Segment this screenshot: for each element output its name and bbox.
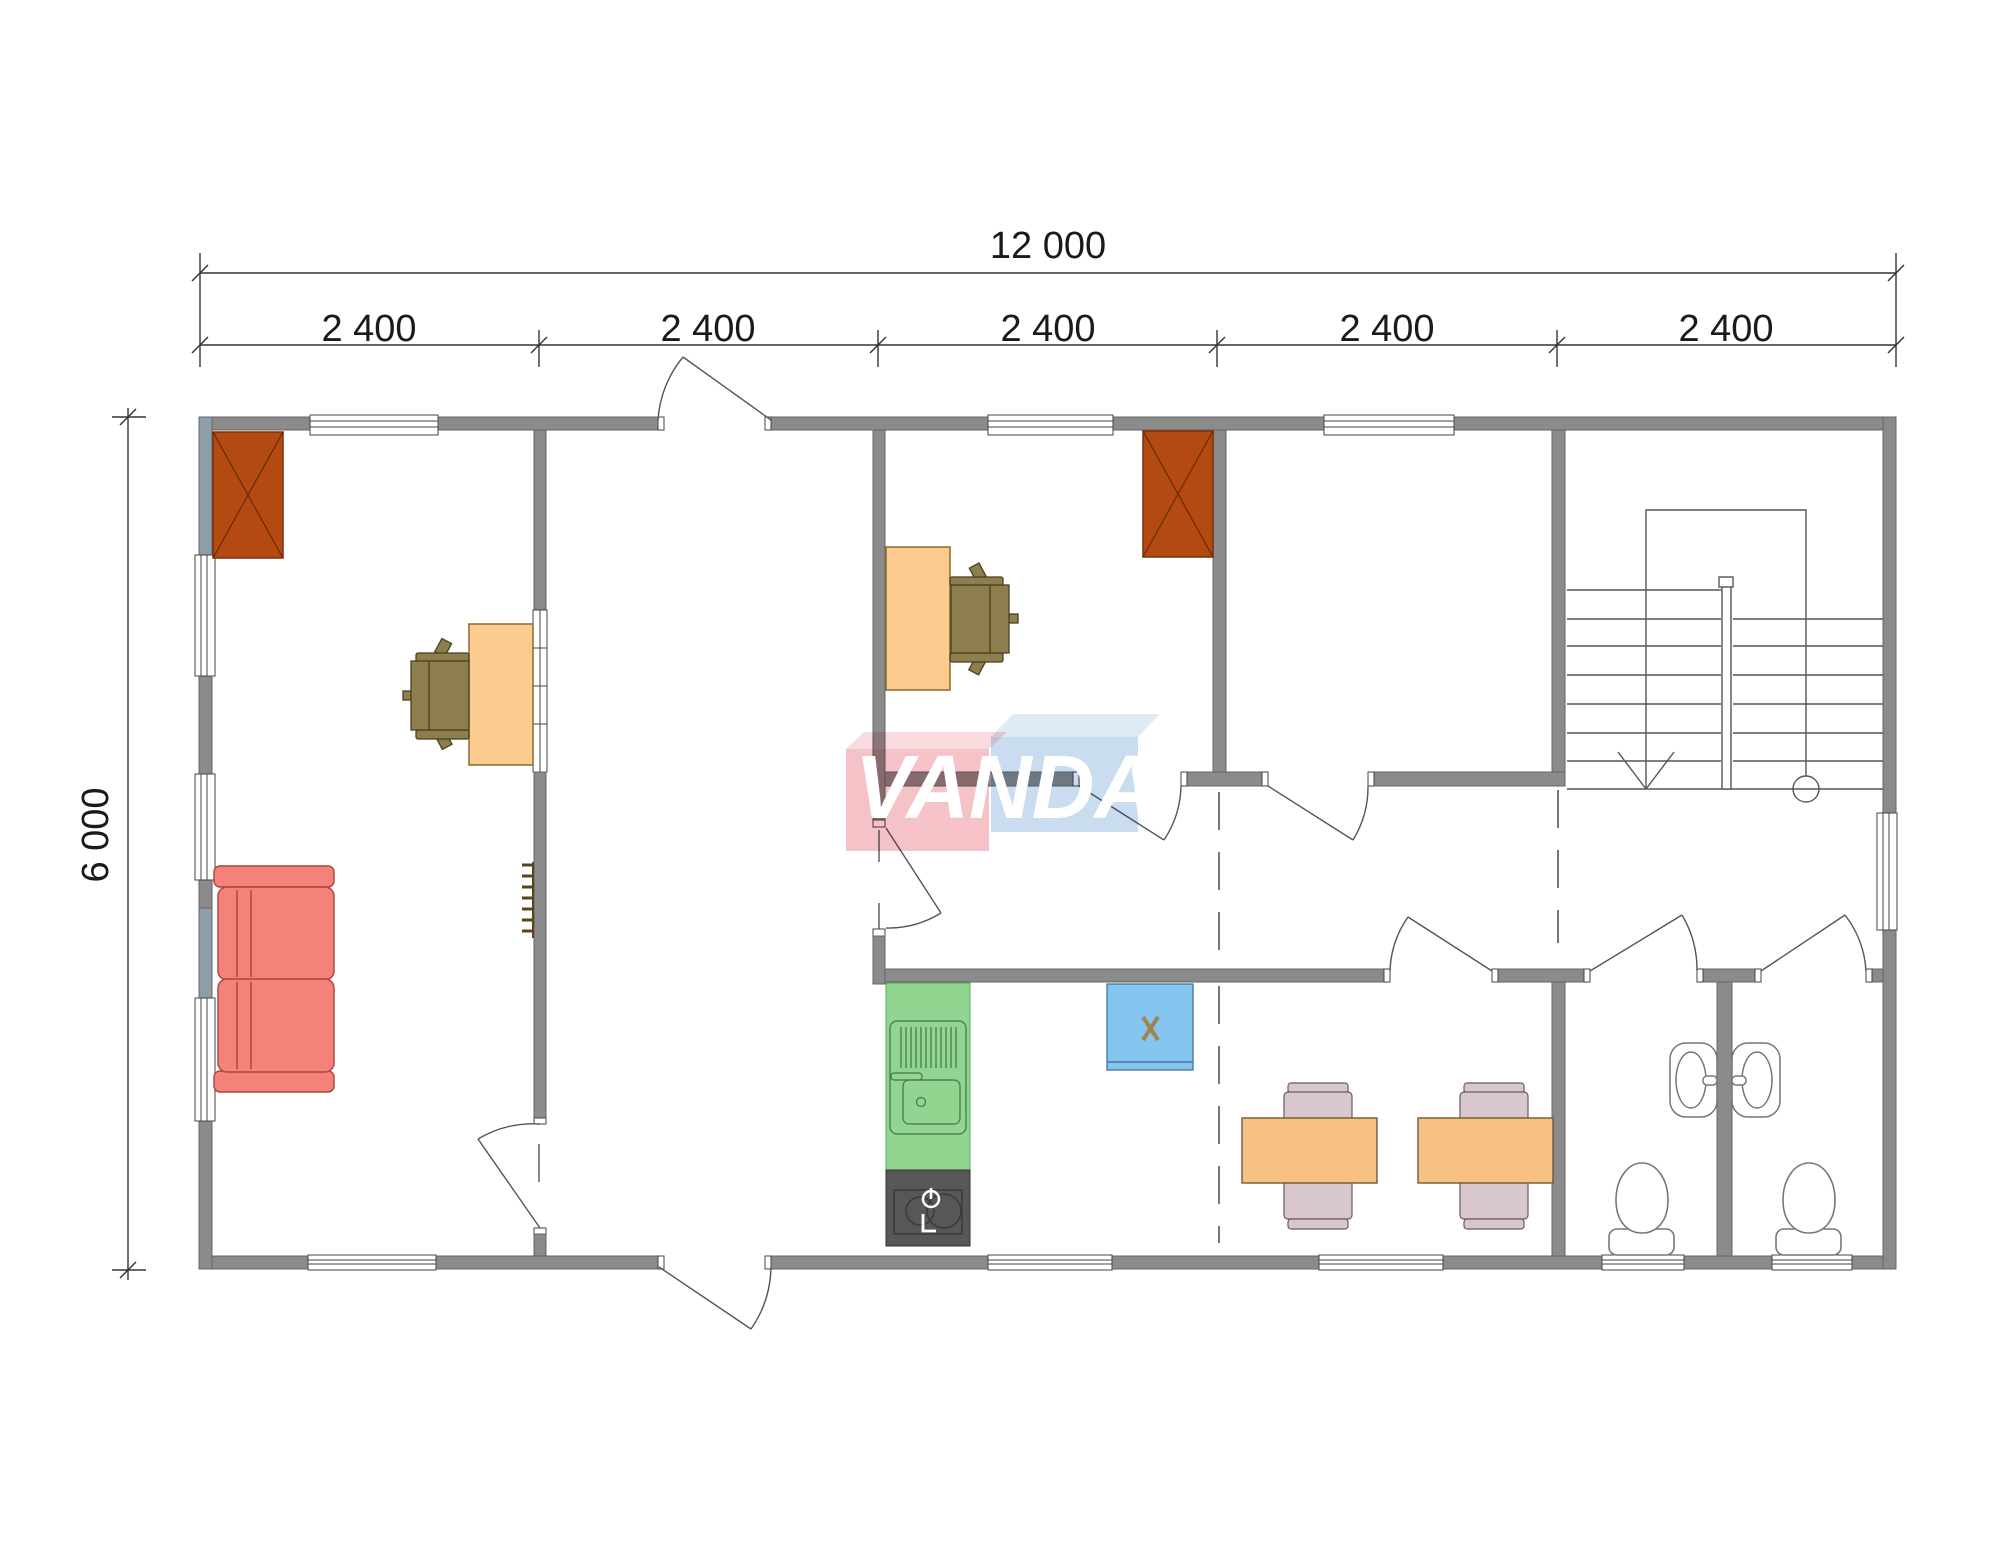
svg-text:2 400: 2 400 <box>321 308 416 350</box>
svg-text:6 000: 6 000 <box>75 787 117 882</box>
svg-text:VANDA: VANDA <box>855 738 1157 838</box>
svg-text:2 400: 2 400 <box>660 308 755 350</box>
svg-text:12 000: 12 000 <box>990 225 1106 267</box>
svg-text:2 400: 2 400 <box>1000 308 1095 350</box>
svg-text:2 400: 2 400 <box>1339 308 1434 350</box>
svg-text:2 400: 2 400 <box>1678 308 1773 350</box>
